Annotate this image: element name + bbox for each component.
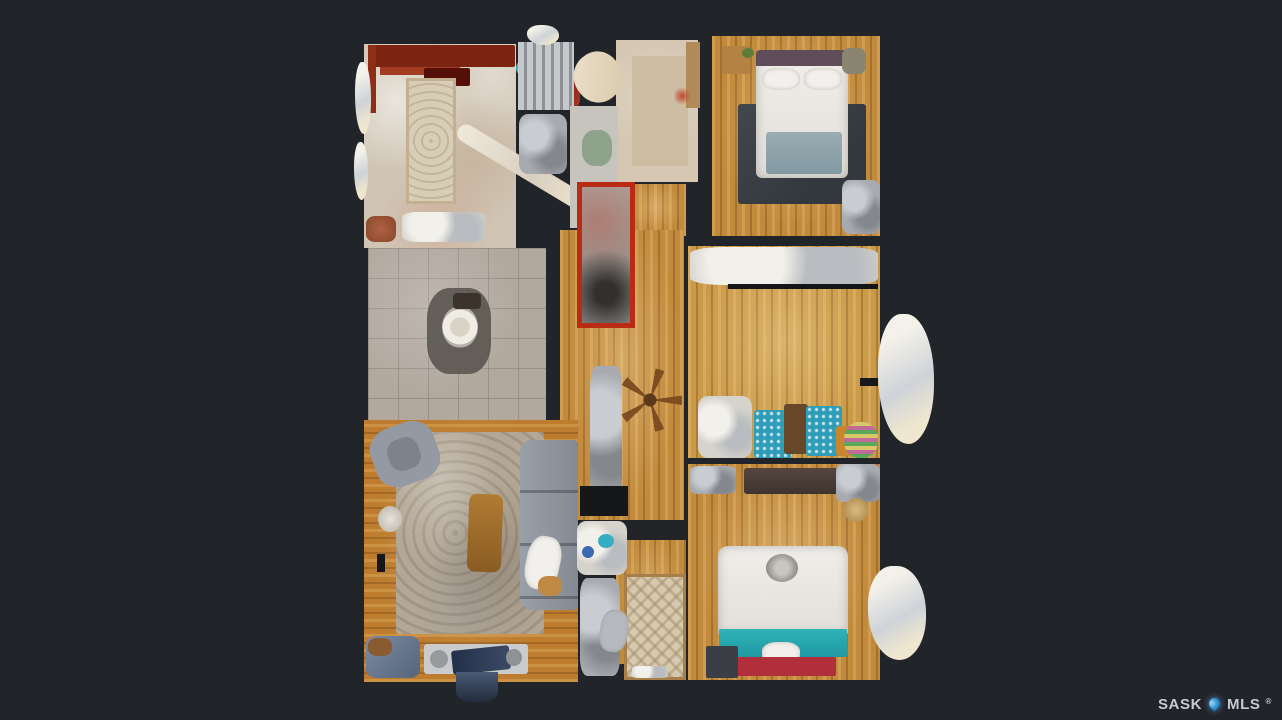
coffee-table bbox=[467, 493, 504, 572]
hallway-dark-patch bbox=[580, 486, 628, 516]
bedroom1-headboard bbox=[756, 50, 848, 66]
office-teal-dot bbox=[598, 534, 614, 548]
floor-plan-canvas: SASK MLS ® bbox=[0, 0, 1282, 720]
stairs-top bbox=[518, 42, 574, 110]
sask-mls-watermark: SASK MLS ® bbox=[1158, 696, 1272, 713]
bedroom2-brown-item bbox=[784, 404, 808, 454]
bedroom2-items-left bbox=[698, 396, 752, 458]
dining-table bbox=[442, 306, 478, 348]
upper-hall-rug bbox=[632, 56, 688, 166]
bedroom2-basket bbox=[844, 422, 878, 458]
bedroom3-topright-items bbox=[836, 464, 880, 502]
bedroom1-corner-item bbox=[842, 48, 866, 74]
bay-protrusion bbox=[456, 672, 498, 702]
bedroom3-headboard bbox=[744, 468, 842, 494]
bedroom1-pillow-right bbox=[804, 68, 842, 90]
console-item-right bbox=[506, 649, 522, 666]
bedroom2-right-ghost bbox=[878, 314, 934, 444]
office-rug bbox=[624, 574, 686, 680]
bedroom3-dark-slab bbox=[706, 646, 738, 678]
side-table bbox=[378, 506, 402, 532]
bedroom2-closet-linens bbox=[690, 247, 878, 285]
watermark-brand-right: MLS bbox=[1227, 696, 1260, 713]
mls-map-pin-icon bbox=[1207, 695, 1223, 711]
bedroom2-door-mark bbox=[860, 378, 878, 386]
top-scan-artifact bbox=[527, 25, 559, 45]
bedroom1-throw bbox=[766, 132, 842, 174]
office-shoes bbox=[632, 666, 668, 678]
kitchen-red-corner bbox=[366, 216, 396, 242]
bath-fixture-green bbox=[582, 130, 612, 166]
living-door-mark bbox=[377, 554, 385, 572]
office-blue-dot bbox=[582, 546, 594, 558]
kitchen-rug bbox=[406, 78, 456, 204]
bedroom1-right-artifact bbox=[842, 180, 880, 234]
bedroom3-mirror bbox=[766, 554, 798, 582]
sofa-pillow-orange bbox=[538, 576, 562, 596]
kitchen-sparkle bbox=[402, 212, 486, 242]
stairwell-down bbox=[577, 182, 635, 328]
console-item-left bbox=[430, 650, 448, 668]
bedroom2-closet-wall bbox=[728, 284, 878, 289]
bedroom1-plant bbox=[742, 48, 754, 58]
ceiling-fan bbox=[618, 368, 682, 432]
hallway-silver-artifact bbox=[590, 366, 622, 500]
dining-chair-top bbox=[453, 293, 481, 309]
bath-vanity bbox=[519, 114, 567, 174]
entry-brown-item bbox=[368, 638, 392, 656]
bedroom1-pillow-left bbox=[762, 68, 800, 90]
bedroom3-hat bbox=[844, 498, 868, 522]
kitchen-ghost-left-1 bbox=[355, 62, 371, 134]
bedroom3-topleft-items bbox=[690, 466, 736, 494]
upper-hall-red-smudge bbox=[674, 86, 690, 106]
kitchen-ghost-left-2 bbox=[354, 142, 368, 200]
bedroom3-red-blanket bbox=[734, 657, 836, 676]
kitchen-cabinets-top bbox=[369, 45, 515, 67]
registered-trademark-symbol: ® bbox=[1266, 697, 1273, 706]
watermark-brand-left: SASK bbox=[1158, 696, 1202, 713]
